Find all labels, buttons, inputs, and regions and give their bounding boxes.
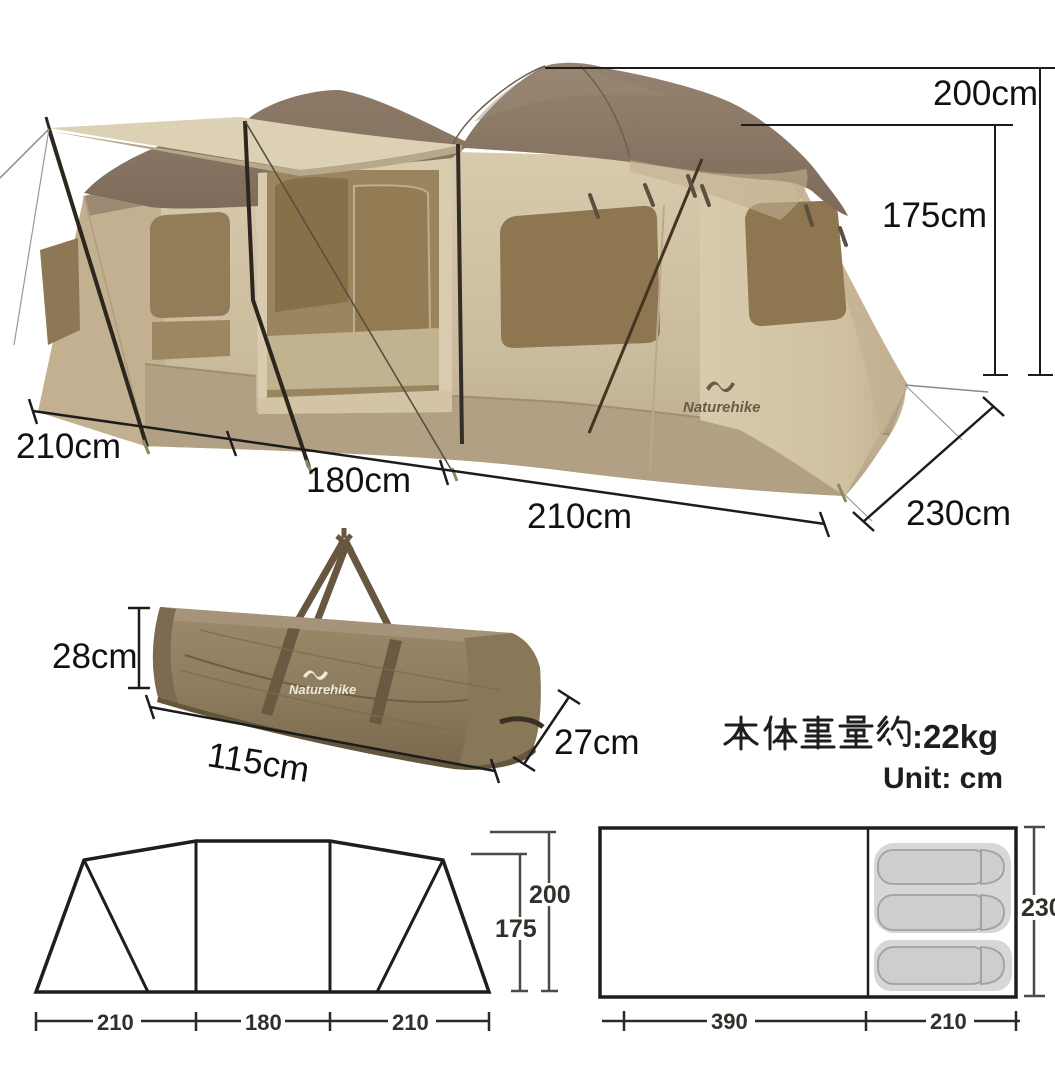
svg-text:200cm: 200cm	[933, 74, 1038, 113]
svg-text:27cm: 27cm	[554, 723, 640, 762]
svg-text:28cm: 28cm	[52, 637, 138, 676]
svg-text:210: 210	[930, 1009, 967, 1034]
svg-text:115cm: 115cm	[205, 735, 312, 790]
svg-text:210cm: 210cm	[16, 427, 121, 466]
svg-text:Naturehike: Naturehike	[289, 682, 356, 697]
svg-text:390: 390	[711, 1009, 748, 1034]
svg-text:230: 230	[1021, 894, 1055, 922]
svg-text:175: 175	[495, 915, 537, 943]
svg-text:210cm: 210cm	[527, 497, 632, 536]
svg-text:230cm: 230cm	[906, 494, 1011, 533]
svg-text:175cm: 175cm	[882, 196, 987, 235]
svg-text:Unit: cm: Unit: cm	[883, 762, 1003, 795]
svg-text:Naturehike: Naturehike	[683, 399, 761, 416]
svg-text:210: 210	[392, 1010, 429, 1035]
svg-text:180: 180	[245, 1010, 282, 1035]
svg-text:200: 200	[529, 881, 571, 909]
svg-text::22kg: :22kg	[912, 718, 998, 755]
svg-text:180cm: 180cm	[306, 461, 411, 500]
svg-text:210: 210	[97, 1010, 134, 1035]
